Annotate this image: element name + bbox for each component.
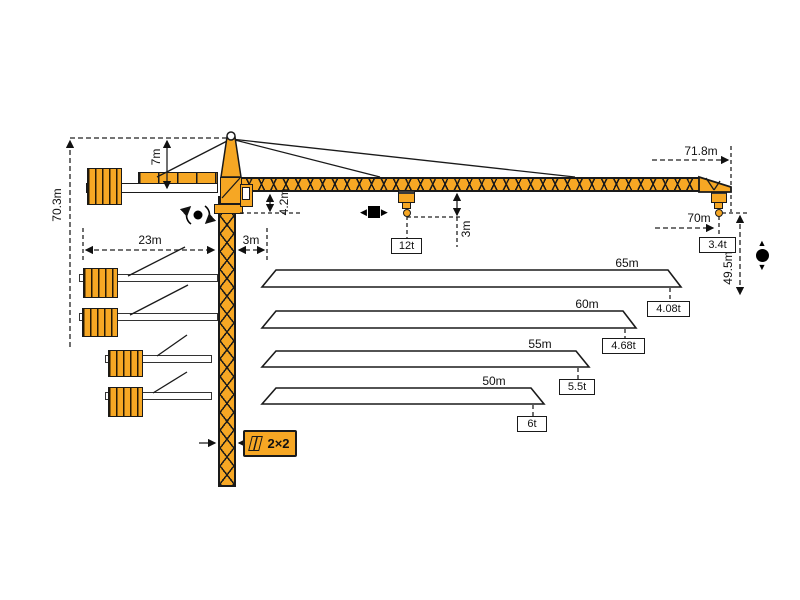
jib-profile-65m <box>262 270 681 287</box>
dim-rear-offset: 3m <box>236 233 266 247</box>
slewing-icon <box>186 206 209 224</box>
variant-load-65m: 4.08t <box>647 301 690 317</box>
mast-section-label: 2×2 <box>267 436 289 451</box>
hoist-icon: ▲ ▼ <box>752 239 772 272</box>
variant-length-65m: 65m <box>610 256 644 270</box>
apex-pin <box>227 132 235 140</box>
variant-length-50m: 50m <box>477 374 511 388</box>
jib-variant-profiles <box>262 270 681 404</box>
arrow-up-icon: ▲ <box>758 239 767 248</box>
variant-length-60m: 60m <box>570 297 604 311</box>
diagram-linework <box>0 0 800 600</box>
trolley-square-icon <box>368 206 380 218</box>
trolley-travel-icon: ◀ ▶ <box>360 206 388 218</box>
arrow-right-icon: ▶ <box>381 207 388 218</box>
jib-profile-60m <box>262 311 636 328</box>
jib-profile-55m <box>262 351 589 367</box>
dim-hook-radius: 70m <box>679 211 719 225</box>
tower-crane-dimension-diagram: 70.3m 7m 23m 3m 4.2m 3m 71.8m 70m 49.5m … <box>0 0 800 600</box>
variant-length-55m: 55m <box>523 337 557 351</box>
hoist-dot-icon <box>756 249 769 262</box>
arrow-left-icon: ◀ <box>360 207 367 218</box>
tie-bars <box>128 247 188 393</box>
dim-jib-height: 4.2m <box>277 182 291 222</box>
mast-section-box: 2×2 <box>243 430 297 457</box>
mast-section-icon <box>249 436 264 451</box>
jib-profile-50m <box>262 388 544 404</box>
head-brace <box>222 178 240 198</box>
dim-tower-head: 7m <box>149 142 163 172</box>
arrow-down-icon: ▼ <box>758 263 767 272</box>
dim-hook-to-jib: 3m <box>459 214 473 244</box>
jib-tip <box>699 177 731 192</box>
variant-load-50m: 6t <box>517 416 547 432</box>
variant-load-55m: 5.5t <box>559 379 595 395</box>
dim-counter-jib: 23m <box>130 233 170 247</box>
dim-tip-radius: 71.8m <box>676 144 726 158</box>
load-max-capacity: 12t <box>391 238 422 254</box>
load-tip-capacity: 3.4t <box>699 237 736 253</box>
dim-total-height: 70.3m <box>50 175 64 235</box>
variant-load-60m: 4.68t <box>602 338 645 354</box>
pendant-lines <box>157 139 575 177</box>
